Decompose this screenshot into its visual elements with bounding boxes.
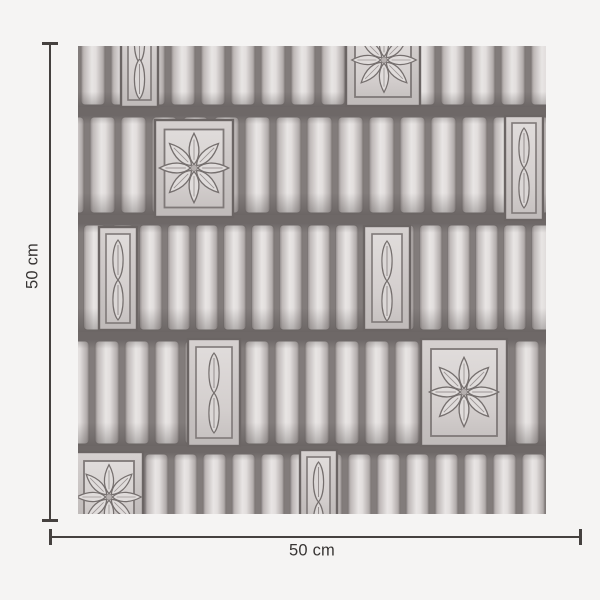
width-dimension-label: 50 cm	[289, 542, 335, 561]
flower-medallion	[346, 46, 420, 106]
height-dimension-line	[49, 43, 51, 521]
leaf-medallion	[121, 46, 158, 107]
product-dimension-figure: 50 cm 50 cm	[0, 0, 600, 600]
leaf-medallion	[188, 339, 240, 446]
width-dimension-line	[50, 536, 581, 538]
leaf-medallion	[99, 227, 137, 330]
dimension-tick-bottom	[42, 519, 58, 522]
height-dimension-label: 50 cm	[24, 243, 43, 289]
flower-medallion	[421, 339, 507, 446]
wallpaper-swatch	[78, 46, 546, 514]
flower-medallion	[155, 120, 233, 217]
leaf-medallion	[300, 450, 337, 514]
flower-medallion	[78, 452, 143, 514]
dimension-tick-right	[579, 529, 582, 545]
leaf-medallion	[505, 116, 543, 220]
leaf-medallion	[364, 226, 410, 330]
